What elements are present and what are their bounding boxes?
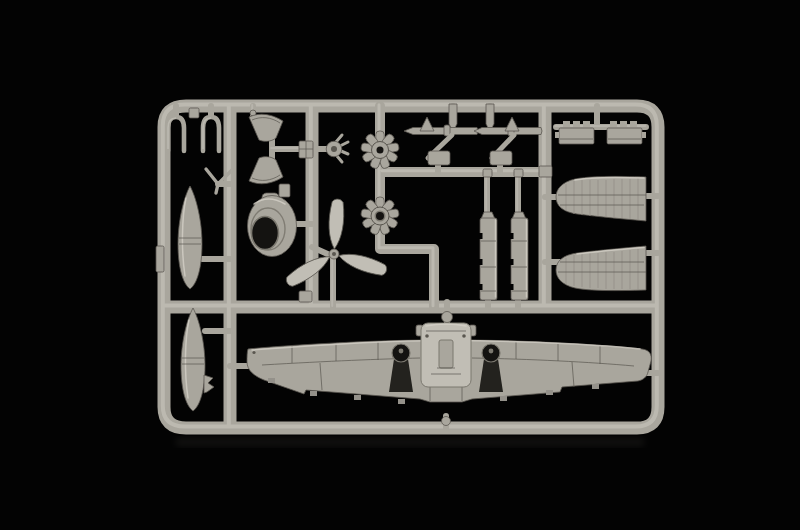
flap-strip-left [479, 212, 497, 300]
photo-stage [0, 0, 800, 530]
black-backdrop [0, 0, 800, 530]
sprue-photo [0, 0, 800, 530]
flap-strip-right [510, 212, 528, 300]
floor-reflection [175, 437, 645, 447]
